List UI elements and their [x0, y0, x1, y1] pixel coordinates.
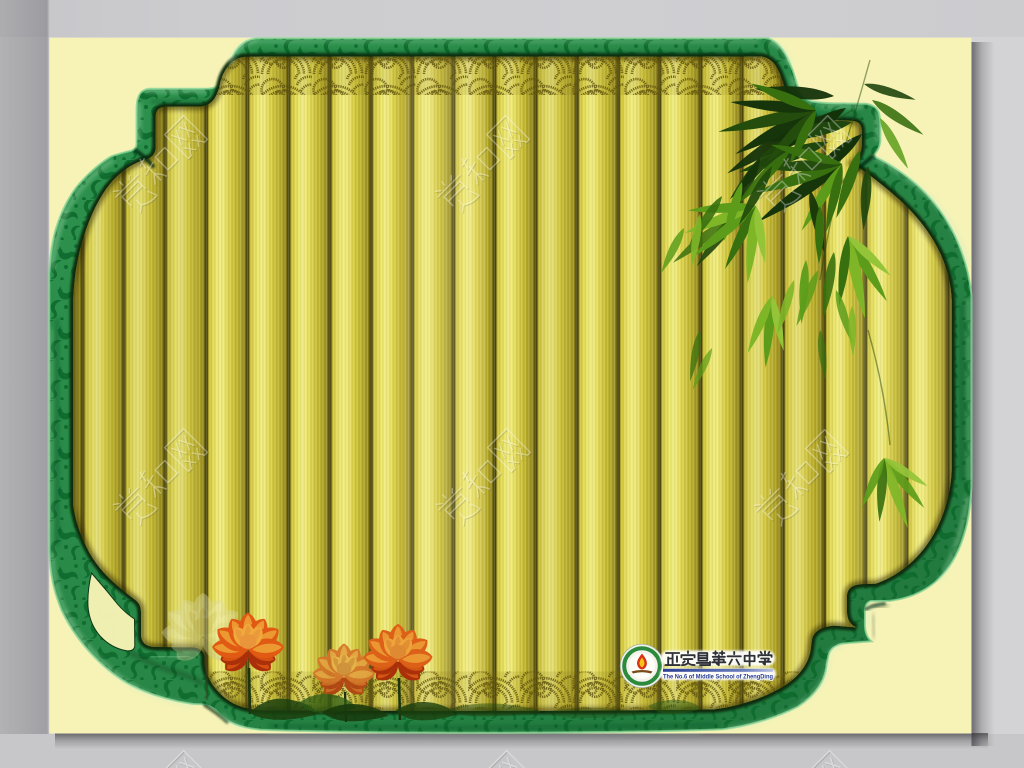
- svg-text:The No.6 of Middle School of Z: The No.6 of Middle School of ZhengDing: [663, 674, 773, 681]
